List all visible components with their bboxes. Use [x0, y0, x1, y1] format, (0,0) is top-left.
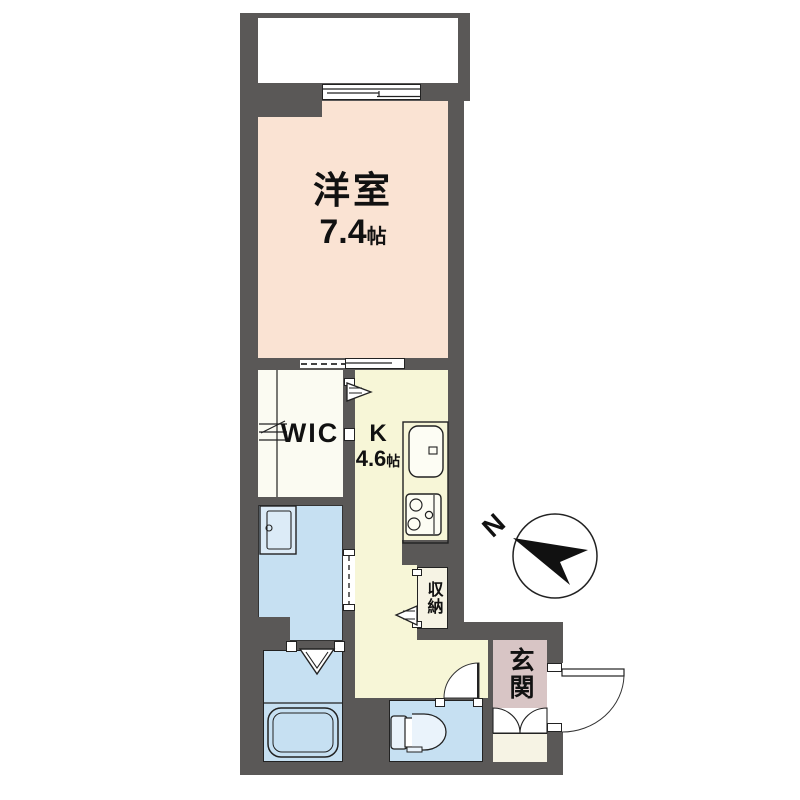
shoe-cabinet: [493, 733, 547, 762]
kitchen-label: K 4.6帖: [349, 421, 407, 472]
wall-counter-stub: [402, 540, 450, 565]
north-compass: [513, 514, 597, 598]
wall-cap: [343, 549, 355, 556]
front-door: [562, 669, 624, 732]
wall-cap: [344, 378, 355, 386]
north-label: N: [476, 499, 521, 544]
entrance-step: [493, 708, 547, 733]
balcony-window: [322, 84, 421, 100]
room-name: 洋室: [258, 170, 448, 213]
floor-plan: 洋室 7.4帖 WIC K 4.6帖 収納 玄関 N: [0, 0, 800, 800]
wall-washroom-notch: [258, 617, 290, 641]
western-room-label: 洋室 7.4帖: [258, 170, 448, 252]
room-size: 4.6帖: [349, 447, 407, 471]
door-post: [334, 641, 345, 652]
sliding-door-track: [300, 360, 345, 368]
storage-label: 収納: [417, 567, 448, 629]
bathroom: [263, 650, 343, 762]
door-post: [547, 663, 562, 672]
sliding-door-panel: [345, 358, 405, 369]
door-post: [473, 698, 483, 707]
wall-column-notch: [258, 101, 322, 117]
washroom-sliding-door: [343, 549, 355, 611]
door-post: [435, 698, 445, 707]
toilet-room: [389, 700, 483, 762]
room-name: K: [349, 421, 407, 447]
room-size: 7.4帖: [258, 213, 448, 252]
entrance-label: 玄関: [493, 640, 547, 708]
wic-label: WIC: [280, 418, 340, 449]
door-post: [547, 723, 562, 732]
north-arrow-icon: [513, 538, 588, 585]
balcony: [258, 18, 458, 83]
door-post: [286, 641, 297, 652]
wall-cap: [343, 604, 355, 611]
hallway-lower: [355, 640, 488, 698]
front-door-opening: [547, 663, 563, 732]
